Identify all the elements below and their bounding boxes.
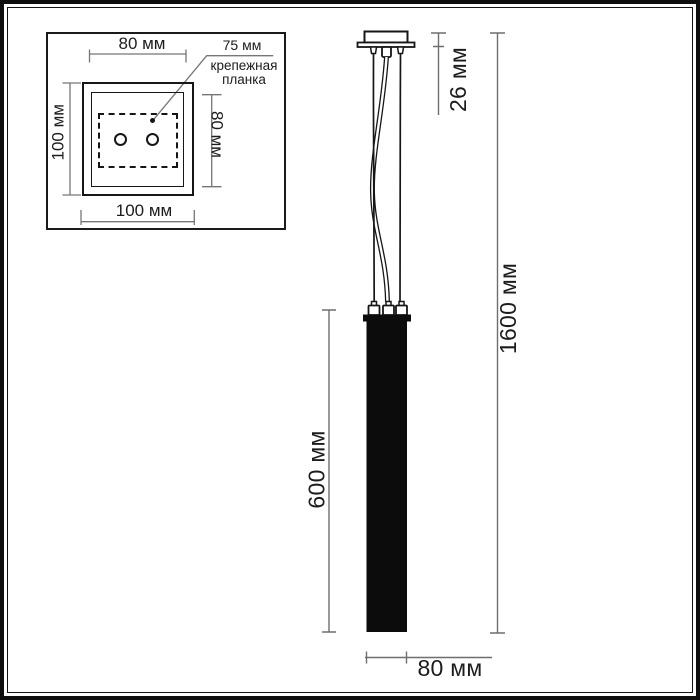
lamp-tube <box>367 321 408 633</box>
dimensional-drawing-page: 80 мм 100 мм 80 мм 100 мм 75 мм крепежна… <box>0 0 700 700</box>
front-dimension-lines <box>322 33 505 664</box>
lamp-body <box>363 315 411 633</box>
dim-label-total-height: 1600 мм <box>495 263 522 354</box>
ceiling-canopy <box>358 32 415 58</box>
dim-label-canopy-height: 26 мм <box>445 47 472 112</box>
lamp-top-cap <box>363 315 411 322</box>
dim-label-body-width: 80 мм <box>410 655 490 682</box>
dim-label-body-height: 600 мм <box>304 430 331 508</box>
steel-wire-left <box>373 54 374 303</box>
front-view-drawing <box>0 0 700 700</box>
suspension-wires <box>372 54 400 303</box>
wire-nipple-left <box>371 47 377 54</box>
cord-grip <box>382 47 391 57</box>
cable-grippers <box>369 302 408 316</box>
wire-nipple-right <box>398 47 404 54</box>
steel-wire-right <box>400 54 401 303</box>
